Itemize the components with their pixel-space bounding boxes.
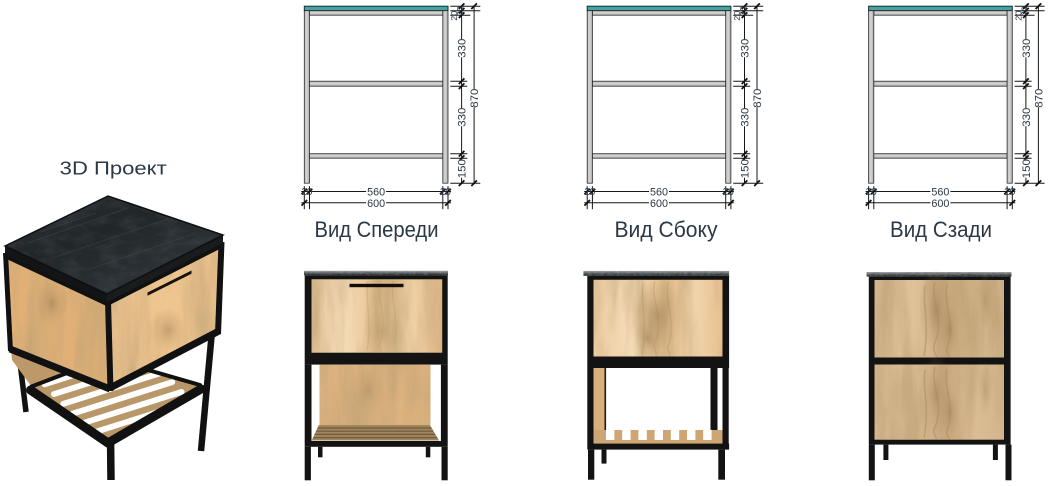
svg-text:3D Проект: 3D Проект bbox=[60, 157, 168, 178]
svg-text:Вид Сбоку: Вид Сбоку bbox=[615, 217, 718, 242]
svg-text:600: 600 bbox=[367, 198, 385, 210]
svg-text:330: 330 bbox=[1021, 39, 1033, 58]
svg-text:560: 560 bbox=[367, 187, 385, 199]
svg-text:20: 20 bbox=[440, 187, 452, 198]
svg-text:560: 560 bbox=[650, 187, 668, 199]
svg-text:150: 150 bbox=[1021, 159, 1033, 178]
svg-text:870: 870 bbox=[1033, 89, 1045, 108]
svg-text:20: 20 bbox=[456, 6, 465, 17]
svg-text:20: 20 bbox=[584, 187, 596, 198]
svg-text:600: 600 bbox=[931, 198, 949, 210]
svg-text:330: 330 bbox=[457, 108, 469, 127]
svg-text:150: 150 bbox=[740, 159, 752, 178]
svg-text:150: 150 bbox=[457, 159, 469, 178]
svg-text:20: 20 bbox=[301, 187, 313, 198]
svg-text:Вид Сзади: Вид Сзади bbox=[890, 217, 992, 242]
svg-text:330: 330 bbox=[457, 39, 469, 58]
svg-text:20: 20 bbox=[1020, 6, 1029, 17]
svg-text:330: 330 bbox=[740, 39, 752, 58]
svg-text:870: 870 bbox=[469, 89, 481, 108]
svg-text:560: 560 bbox=[931, 187, 949, 199]
svg-text:20: 20 bbox=[723, 187, 735, 198]
svg-text:600: 600 bbox=[650, 198, 668, 210]
svg-text:870: 870 bbox=[752, 89, 764, 108]
svg-text:20: 20 bbox=[1004, 187, 1016, 198]
svg-text:Вид Спереди: Вид Спереди bbox=[315, 217, 439, 242]
svg-text:330: 330 bbox=[740, 108, 752, 127]
svg-text:330: 330 bbox=[1021, 108, 1033, 127]
svg-text:20: 20 bbox=[866, 187, 878, 198]
svg-text:20: 20 bbox=[739, 6, 748, 17]
